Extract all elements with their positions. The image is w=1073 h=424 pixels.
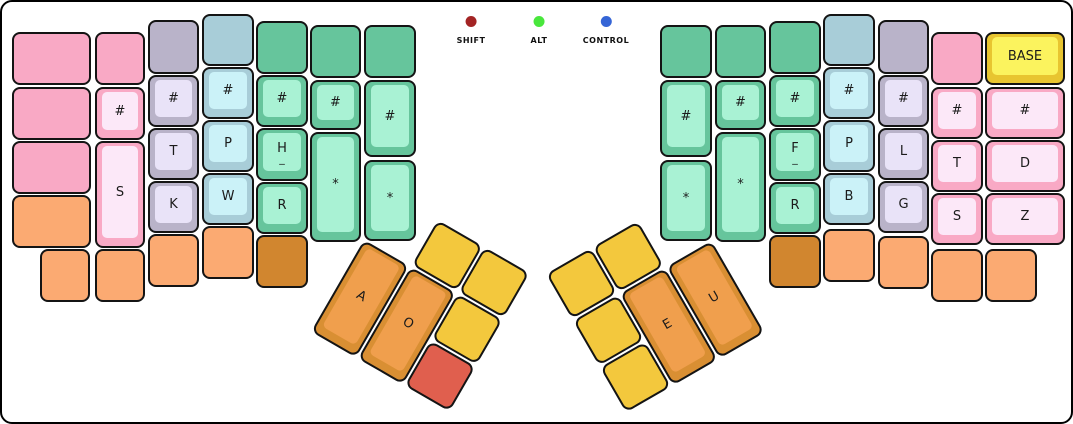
keycap-top: T bbox=[155, 133, 192, 170]
key-blank bbox=[12, 32, 91, 85]
key-h: H_ bbox=[256, 128, 308, 181]
key-label: # bbox=[681, 109, 692, 124]
key-blank bbox=[769, 21, 821, 74]
key-label: O bbox=[400, 314, 416, 332]
key-d: D bbox=[985, 140, 1065, 192]
key-blank bbox=[878, 236, 929, 289]
key-label: # bbox=[952, 103, 963, 118]
keymap-canvas: SHIFT ALT CONTROL #S#TK#PW#H_R#*#*#*#*#F… bbox=[0, 0, 1073, 424]
key-label: Z bbox=[1021, 209, 1030, 224]
key-star: * bbox=[310, 132, 361, 242]
key-base: BASE bbox=[985, 32, 1065, 85]
key-label: # bbox=[223, 83, 234, 98]
key-hash: # bbox=[660, 80, 712, 157]
key-blank bbox=[12, 195, 91, 248]
keycap-top: # bbox=[830, 72, 868, 109]
key-blank bbox=[310, 25, 361, 78]
keycap-top: R bbox=[263, 187, 301, 224]
key-hash: # bbox=[256, 75, 308, 127]
key-hash: # bbox=[823, 67, 875, 119]
keycap-top: * bbox=[722, 137, 759, 232]
key-label: B bbox=[845, 189, 854, 204]
key-g: G bbox=[878, 181, 929, 233]
key-label: E bbox=[660, 316, 675, 333]
key-label: L bbox=[900, 144, 907, 159]
key-hash: # bbox=[95, 87, 145, 140]
key-blank bbox=[364, 25, 416, 78]
key-label: G bbox=[898, 197, 908, 212]
key-hash: # bbox=[310, 80, 361, 130]
key-k: K bbox=[148, 181, 199, 233]
keycap-top: B bbox=[830, 178, 868, 215]
key-t: T bbox=[148, 128, 199, 180]
indicator-shift: SHIFT bbox=[457, 16, 486, 45]
key-sub-label: _ bbox=[792, 156, 798, 164]
key-blank bbox=[95, 249, 145, 302]
alt-dot-icon bbox=[533, 16, 544, 27]
key-blank bbox=[715, 25, 766, 78]
key-r: R bbox=[769, 182, 821, 234]
key-p: P bbox=[823, 120, 875, 172]
keycap-top: P bbox=[830, 125, 868, 162]
key-label: # bbox=[844, 83, 855, 98]
key-label: R bbox=[790, 198, 799, 213]
keycap-top: H_ bbox=[263, 133, 301, 171]
key-label: W bbox=[222, 189, 235, 204]
keycap-top: F_ bbox=[776, 133, 814, 171]
key-blank bbox=[12, 87, 91, 140]
key-label: R bbox=[277, 198, 286, 213]
key-label: # bbox=[115, 104, 126, 119]
indicator-shift-label: SHIFT bbox=[457, 36, 486, 45]
keycap-top: # bbox=[102, 92, 138, 130]
key-hash: # bbox=[715, 80, 766, 130]
key-s: S bbox=[95, 141, 145, 248]
keycap-top: G bbox=[885, 186, 922, 223]
key-hash: # bbox=[931, 87, 983, 139]
key-f: F_ bbox=[769, 128, 821, 181]
key-blank bbox=[12, 141, 91, 194]
key-blank bbox=[985, 249, 1037, 302]
key-label: S bbox=[953, 209, 961, 224]
key-b: B bbox=[823, 173, 875, 225]
key-blank bbox=[256, 21, 308, 74]
key-label: * bbox=[332, 177, 339, 192]
key-blank bbox=[256, 235, 308, 288]
keycap-top: T bbox=[938, 145, 976, 182]
keycap-top: K bbox=[155, 186, 192, 223]
key-r: R bbox=[256, 182, 308, 234]
key-hash: # bbox=[202, 67, 254, 119]
key-label: BASE bbox=[1008, 49, 1042, 64]
key-label: D bbox=[1020, 156, 1030, 171]
key-p: P bbox=[202, 120, 254, 172]
keycap-top: # bbox=[155, 80, 192, 117]
key-hash: # bbox=[364, 80, 416, 157]
key-blank bbox=[40, 249, 90, 302]
key-star: * bbox=[715, 132, 766, 242]
key-blank bbox=[931, 32, 983, 85]
key-label: # bbox=[735, 95, 746, 110]
key-blank bbox=[823, 14, 875, 66]
key-t: T bbox=[931, 140, 983, 192]
key-blank bbox=[202, 226, 254, 279]
keycap-top: # bbox=[263, 80, 301, 117]
keycap-top: # bbox=[776, 80, 814, 117]
key-label: # bbox=[790, 91, 801, 106]
key-label: S bbox=[116, 185, 124, 200]
key-z: Z bbox=[985, 193, 1065, 245]
key-hash: # bbox=[769, 75, 821, 127]
key-sub-label: _ bbox=[279, 156, 285, 164]
key-label: K bbox=[169, 197, 178, 212]
key-label: # bbox=[385, 109, 396, 124]
key-label: # bbox=[168, 91, 179, 106]
keycap-top: # bbox=[667, 85, 705, 147]
key-label: A bbox=[354, 288, 369, 305]
indicator-control: CONTROL bbox=[583, 16, 629, 45]
key-label: # bbox=[330, 95, 341, 110]
keycap-top: R bbox=[776, 187, 814, 224]
indicator-alt-label: ALT bbox=[531, 36, 548, 45]
keycap-top: # bbox=[209, 72, 247, 109]
key-blank bbox=[148, 234, 199, 287]
key-label: P bbox=[845, 136, 853, 151]
key-label: * bbox=[737, 177, 744, 192]
key-blank bbox=[769, 235, 821, 288]
key-hash: # bbox=[985, 87, 1065, 139]
key-label: U bbox=[706, 289, 722, 307]
keycap-top: L bbox=[885, 133, 922, 170]
keycap-top: D bbox=[992, 145, 1058, 182]
key-label: # bbox=[898, 91, 909, 106]
keycap-top: P bbox=[209, 125, 247, 162]
key-label: # bbox=[1020, 103, 1031, 118]
keycap-top: Z bbox=[992, 198, 1058, 235]
key-label: # bbox=[277, 91, 288, 106]
key-blank bbox=[931, 249, 983, 302]
key-label: T bbox=[170, 144, 178, 159]
keycap-top: S bbox=[938, 198, 976, 235]
indicator-control-label: CONTROL bbox=[583, 36, 629, 45]
key-blank bbox=[202, 14, 254, 66]
key-blank bbox=[148, 20, 199, 74]
key-hash: # bbox=[878, 75, 929, 127]
key-blank bbox=[660, 25, 712, 78]
key-hash: # bbox=[148, 75, 199, 127]
keycap-top: S bbox=[102, 146, 138, 238]
key-blank bbox=[878, 20, 929, 74]
shift-dot-icon bbox=[465, 16, 476, 27]
indicator-alt: ALT bbox=[531, 16, 548, 45]
key-blank bbox=[95, 32, 145, 85]
keycap-top: * bbox=[317, 137, 354, 232]
key-l: L bbox=[878, 128, 929, 180]
keycap-top: # bbox=[885, 80, 922, 117]
key-s: S bbox=[931, 193, 983, 245]
control-dot-icon bbox=[600, 16, 611, 27]
keycap-top: BASE bbox=[992, 37, 1058, 75]
key-blank bbox=[823, 229, 875, 282]
keycap-top: # bbox=[992, 92, 1058, 129]
keycap-top: # bbox=[722, 85, 759, 120]
key-label: P bbox=[224, 136, 232, 151]
keycap-top: # bbox=[938, 92, 976, 129]
keycap-top: W bbox=[209, 178, 247, 215]
key-label: T bbox=[953, 156, 961, 171]
key-w: W bbox=[202, 173, 254, 225]
keycap-top: # bbox=[371, 85, 409, 147]
keycap-top: # bbox=[317, 85, 354, 120]
